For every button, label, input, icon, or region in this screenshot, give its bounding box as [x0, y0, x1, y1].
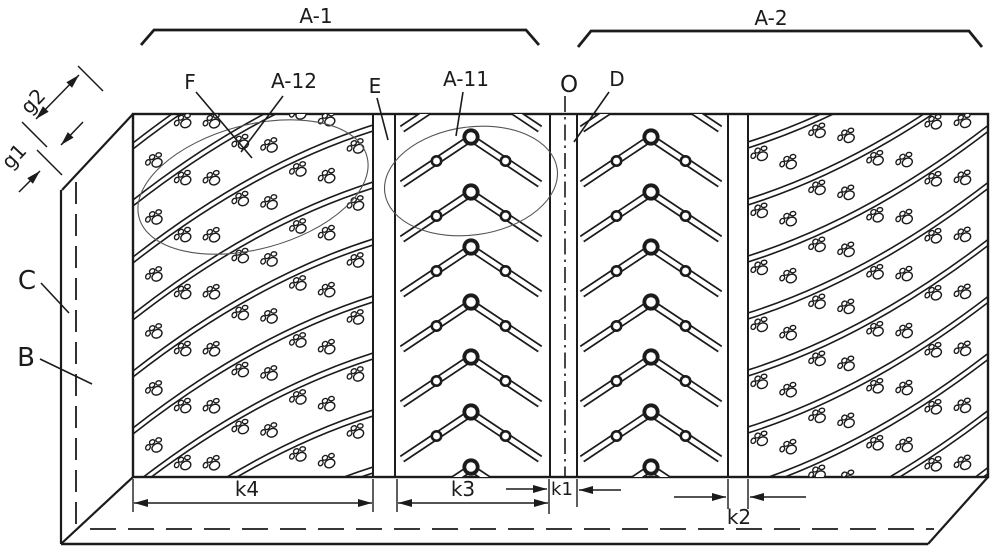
groove-line: [748, 472, 990, 555]
paw-cluster: [864, 91, 888, 112]
brace-label-a2: A-2: [754, 6, 787, 30]
paw-cluster: [835, 183, 859, 204]
paw-cluster: [286, 331, 310, 352]
paw-cluster: [777, 152, 801, 173]
paw-cluster: [864, 262, 888, 283]
indicator-ellipse-f: [123, 97, 383, 278]
paw-cluster: [286, 217, 310, 238]
groove-line: [133, 74, 373, 206]
paw-cluster: [951, 0, 975, 18]
chevron: [582, 183, 720, 239]
figure-linework: [19, 0, 990, 555]
paw-cluster: [922, 55, 946, 76]
paw-cluster: [777, 266, 801, 287]
paw-cluster: [806, 64, 830, 85]
paw-cluster: [835, 411, 859, 432]
groove-line: [133, 182, 373, 314]
paw-cluster: [893, 36, 917, 57]
paw-cluster: [200, 510, 224, 531]
groove-line: [133, 68, 373, 200]
callout-a11: A-11: [443, 67, 489, 91]
chevron: [582, 403, 720, 459]
paw-cluster: [171, 453, 195, 474]
paw-cluster: [777, 323, 801, 344]
paw-cluster: [258, 307, 282, 328]
callout-f: F: [184, 70, 196, 94]
paw-cluster: [200, 225, 224, 246]
paw-cluster: [835, 297, 859, 318]
paw-cluster: [951, 282, 975, 303]
paw-cluster: [922, 397, 946, 418]
paw-cluster: [835, 468, 859, 489]
paw-cluster: [315, 508, 339, 529]
groove-line: [133, 125, 373, 257]
paw-cluster: [229, 360, 253, 381]
callout-c: C: [18, 266, 36, 296]
groove-line: [133, 17, 373, 149]
groove-line: [133, 188, 373, 320]
callout-e: E: [369, 74, 382, 98]
brace-a1: [141, 30, 539, 45]
paw-cluster: [922, 112, 946, 133]
paw-cluster: [200, 168, 224, 189]
callout-d: D: [609, 67, 624, 91]
paw-cluster: [951, 339, 975, 360]
paw-cluster: [200, 339, 224, 360]
paw-cluster: [835, 240, 859, 261]
paw-cluster: [864, 376, 888, 397]
paw-cluster: [142, 436, 166, 457]
paw-cluster: [315, 451, 339, 472]
groove-line: [133, 131, 373, 263]
paw-cluster: [142, 379, 166, 400]
paw-cluster: [864, 490, 888, 511]
paw-cluster: [200, 282, 224, 303]
paw-cluster: [922, 454, 946, 475]
paw-cluster: [200, 453, 224, 474]
chevron: [582, 348, 720, 404]
paw-cluster: [229, 246, 253, 267]
paw-cluster: [951, 54, 975, 75]
chevron: [582, 458, 720, 514]
dim-label-k2: k2: [727, 505, 751, 529]
paw-cluster: [315, 52, 339, 73]
brace-label-a1: A-1: [299, 4, 332, 28]
paw-cluster: [893, 549, 917, 555]
paw-cluster: [258, 22, 282, 43]
paw-cluster: [951, 453, 975, 474]
paw-cluster: [171, 225, 195, 246]
paw-cluster: [229, 303, 253, 324]
dim-label-k3: k3: [451, 477, 475, 501]
paw-cluster: [864, 205, 888, 226]
paw-cluster: [258, 364, 282, 385]
paw-cluster: [777, 209, 801, 230]
paw-cluster: [229, 18, 253, 39]
paw-cluster: [864, 547, 888, 555]
callout-a12: A-12: [271, 69, 317, 93]
section-braces: [141, 30, 982, 47]
paw-cluster: [315, 166, 339, 187]
chevron: [582, 128, 720, 184]
chevron-band-2: [582, 73, 720, 514]
paw-cluster: [315, 337, 339, 358]
paw-cluster: [286, 46, 310, 67]
paw-cluster: [748, 87, 772, 108]
groove-line: [748, 409, 990, 541]
paw-cluster: [258, 478, 282, 499]
callout-b: B: [17, 343, 35, 373]
paw-cluster: [951, 225, 975, 246]
groove-line: [748, 466, 990, 555]
paw-cluster: [142, 208, 166, 229]
paw-cluster: [806, 178, 830, 199]
paw-cluster: [142, 151, 166, 172]
paw-cluster: [951, 396, 975, 417]
patent-tread-figure: A-1 A-2 F A-12 E A-11 O D C B g2 g1 k4 k…: [0, 0, 1000, 555]
paw-cluster: [258, 136, 282, 157]
paw-cluster: [864, 433, 888, 454]
chevron: [402, 293, 540, 349]
paw-cluster: [893, 93, 917, 114]
callout-o: O: [560, 72, 578, 98]
paw-cluster: [171, 510, 195, 531]
paw-cluster: [806, 406, 830, 427]
paw-cluster: [229, 417, 253, 438]
paw-cluster: [344, 479, 368, 500]
paw-cluster: [835, 69, 859, 90]
figure-canvas: A-1 A-2 F A-12 E A-11 O D C B g2 g1 k4 k…: [0, 0, 1000, 555]
paw-cluster: [893, 435, 917, 456]
chevron: [402, 238, 540, 294]
paw-cluster: [142, 550, 166, 555]
paw-cluster: [777, 437, 801, 458]
paw-cluster: [893, 150, 917, 171]
paw-cluster: [922, 169, 946, 190]
chevron: [582, 238, 720, 294]
groove-line: [748, 16, 990, 148]
paw-cluster: [806, 121, 830, 142]
paw-cluster: [864, 34, 888, 55]
paw-cluster: [806, 235, 830, 256]
dim-label-k1: k1: [551, 479, 573, 500]
paw-cluster: [286, 274, 310, 295]
paw-cluster: [806, 349, 830, 370]
paw-cluster: [893, 378, 917, 399]
paw-cluster: [344, 80, 368, 101]
groove-line: [133, 302, 373, 434]
paw-cluster: [777, 380, 801, 401]
paw-cluster: [922, 226, 946, 247]
chevron: [402, 403, 540, 459]
paw-cluster: [258, 250, 282, 271]
paw-cluster: [258, 193, 282, 214]
paw-cluster: [893, 264, 917, 285]
paw-cluster: [171, 168, 195, 189]
paw-cluster: [286, 502, 310, 523]
paw-cluster: [835, 354, 859, 375]
groove-line: [133, 239, 373, 371]
paw-cluster: [835, 525, 859, 546]
paw-cluster: [229, 531, 253, 552]
paw-cluster: [200, 396, 224, 417]
paw-cluster: [893, 492, 917, 513]
paw-cluster: [286, 160, 310, 181]
groove-line: [133, 296, 373, 428]
paw-cluster: [142, 94, 166, 115]
groove-line: [133, 245, 373, 377]
dim-label-g1: g1: [0, 139, 31, 174]
shoulder-band-left: [133, 0, 373, 555]
paw-cluster: [171, 339, 195, 360]
paw-cluster: [864, 148, 888, 169]
paw-cluster: [922, 0, 946, 19]
chevron: [402, 348, 540, 404]
paw-cluster: [258, 421, 282, 442]
brace-a2: [578, 31, 982, 47]
chevron: [582, 293, 720, 349]
paw-cluster: [922, 283, 946, 304]
paw-cluster: [951, 168, 975, 189]
paw-cluster: [171, 282, 195, 303]
paw-cluster: [200, 54, 224, 75]
paw-cluster: [806, 292, 830, 313]
dim-label-k4: k4: [235, 477, 259, 501]
paw-cluster: [229, 189, 253, 210]
figure-labels: A-1 A-2 F A-12 E A-11 O D C B g2 g1 k4 k…: [0, 4, 788, 529]
paw-cluster: [777, 551, 801, 555]
paw-cluster: [142, 322, 166, 343]
paw-cluster: [893, 207, 917, 228]
paw-cluster: [142, 265, 166, 286]
paw-cluster: [315, 394, 339, 415]
paw-cluster: [835, 126, 859, 147]
groove-line: [133, 359, 373, 491]
paw-cluster: [171, 396, 195, 417]
paw-cluster: [922, 340, 946, 361]
paw-cluster: [806, 463, 830, 484]
paw-cluster: [286, 445, 310, 466]
paw-cluster: [806, 520, 830, 541]
groove-line: [748, 73, 990, 205]
paw-cluster: [286, 388, 310, 409]
paw-cluster: [229, 75, 253, 96]
paw-cluster: [864, 319, 888, 340]
paw-cluster: [344, 23, 368, 44]
chevron: [402, 128, 540, 184]
paw-cluster: [893, 321, 917, 342]
shoulder-band-right: [748, 0, 990, 555]
groove-line: [133, 353, 373, 485]
tread-border: [133, 114, 988, 477]
paw-cluster: [315, 280, 339, 301]
